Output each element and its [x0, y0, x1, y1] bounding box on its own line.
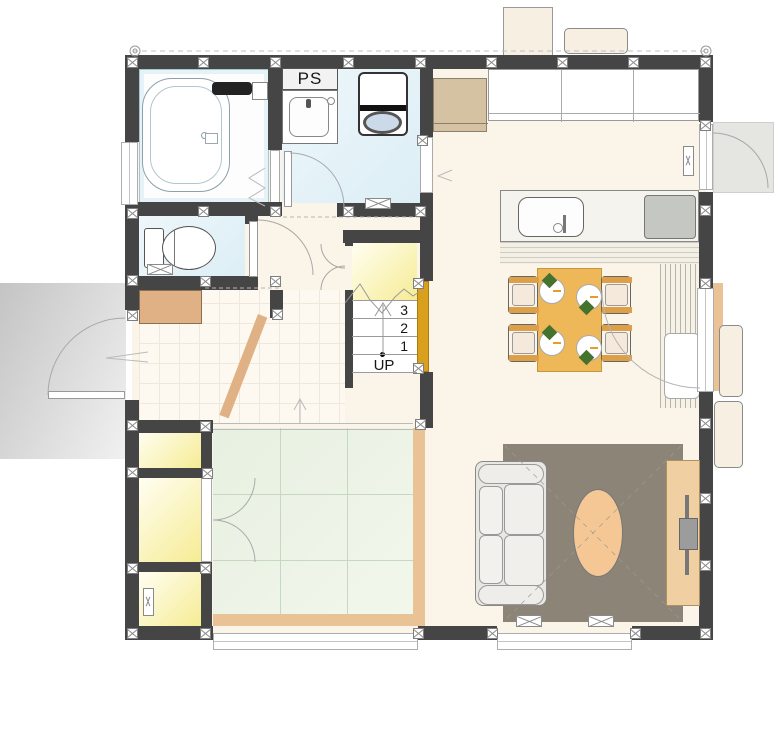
stair-number: 3 — [390, 302, 408, 318]
column-marker — [200, 276, 211, 287]
column-marker — [127, 57, 138, 68]
wall-cabinet — [488, 69, 699, 121]
bathroom-counter-faucet — [212, 82, 252, 95]
column-marker — [700, 57, 711, 68]
chair-arm — [509, 277, 539, 283]
entrance-porch — [0, 283, 126, 459]
column-marker — [630, 628, 641, 639]
washroom-door-leaf — [284, 151, 292, 207]
toilet-seat-line — [174, 230, 175, 266]
dining-chair — [508, 276, 538, 314]
dining-chair — [601, 276, 631, 314]
tatami-grid-line — [280, 428, 281, 616]
cabinet-divider — [561, 70, 562, 122]
column-marker — [413, 278, 424, 289]
cooktop — [644, 195, 696, 239]
washing-machine — [358, 72, 408, 136]
vent-marker-icon — [516, 615, 542, 627]
column-marker — [415, 419, 426, 430]
column-marker — [198, 206, 209, 217]
washbasin-drain — [327, 97, 335, 105]
column-marker — [127, 420, 138, 431]
stair-tread-line — [352, 300, 417, 301]
column-marker — [487, 628, 498, 639]
wall-closet-right-3 — [201, 572, 212, 626]
chair-arm — [509, 325, 539, 331]
column-marker — [415, 57, 426, 68]
toilet-tank — [144, 228, 164, 268]
tatami-border-right — [413, 428, 425, 626]
chair-arm — [509, 307, 539, 313]
sofa-seat-cushion — [504, 484, 544, 535]
kitchen-side-window — [697, 288, 714, 392]
chopsticks — [590, 296, 598, 298]
wall-bathroom-right — [268, 55, 282, 150]
column-marker — [127, 628, 138, 639]
vent-marker-icon — [147, 264, 173, 275]
toilet-door-leaf — [249, 221, 258, 277]
refrigerator — [433, 78, 487, 132]
column-marker — [486, 57, 497, 68]
column-marker — [127, 275, 138, 286]
stair-tread-line — [352, 354, 417, 355]
stair-tread-line — [352, 336, 417, 337]
back-door-porch — [713, 122, 774, 193]
column-marker — [127, 563, 138, 574]
front-door-leaf — [48, 391, 125, 399]
sofa — [475, 461, 547, 606]
column-marker — [202, 468, 213, 479]
counter-front-panel — [500, 242, 699, 264]
washbasin — [282, 90, 338, 144]
bathroom-sliding-door — [270, 150, 280, 203]
closet-2-floor — [139, 478, 201, 562]
living-window — [497, 633, 632, 650]
ac-outdoor-unit-top — [564, 28, 628, 54]
bath-stool — [205, 133, 218, 144]
sofa-back-cushion — [479, 535, 503, 584]
sink-faucet — [563, 215, 566, 233]
column-marker — [700, 120, 711, 131]
wall-left-b — [125, 205, 139, 310]
column-marker — [343, 206, 354, 217]
column-marker — [270, 276, 281, 287]
chair-seat — [512, 284, 535, 306]
chair-seat — [512, 332, 535, 354]
bathroom-shelf — [252, 82, 268, 100]
vent-marker-icon — [588, 615, 614, 627]
floor-plan: 3 2 1 UP PS — [0, 0, 774, 738]
sofa-arm — [478, 464, 544, 484]
cabinet-shelf-line — [489, 113, 700, 114]
tatami-grid-line — [213, 494, 413, 495]
chair-arm — [602, 325, 632, 331]
dining-chair — [601, 324, 631, 362]
vent-marker-icon — [365, 198, 391, 209]
pipe-space-label: PS — [282, 68, 338, 90]
column-marker — [557, 57, 568, 68]
closet-1-floor — [139, 430, 201, 468]
vent-marker-icon — [683, 146, 694, 176]
wall-left-a — [125, 55, 139, 142]
deck-bench — [664, 333, 700, 399]
chair-seat — [605, 332, 628, 354]
sink-drain — [553, 223, 563, 233]
chopsticks — [590, 347, 598, 349]
wall-bottom-b — [418, 626, 497, 640]
wall-toilet-bottom — [125, 276, 258, 290]
wall-stairs-left-a — [345, 230, 353, 246]
tatami-grid-line — [213, 560, 413, 561]
wall-stairs-left-b — [345, 290, 353, 388]
column-marker — [127, 467, 138, 478]
tatami-window — [213, 633, 418, 650]
column-marker — [270, 57, 281, 68]
tv-board — [666, 460, 700, 606]
chopsticks — [553, 342, 561, 344]
column-marker — [413, 628, 424, 639]
cabinet-divider — [633, 70, 634, 122]
column-marker — [415, 206, 426, 217]
wall-right-c — [699, 392, 713, 640]
dining-chair — [508, 324, 538, 362]
chair-arm — [602, 355, 632, 361]
sofa-arm — [478, 585, 544, 605]
stairs-gold-wall — [417, 281, 429, 372]
sofa-back-cushion — [479, 486, 503, 535]
tatami-opening-top — [213, 423, 413, 430]
stair-number: 2 — [390, 320, 408, 336]
column-marker — [700, 205, 711, 216]
kitchen-sink — [518, 197, 584, 237]
wall-stairs-top — [343, 230, 423, 243]
column-marker — [628, 57, 639, 68]
chair-arm — [509, 355, 539, 361]
chopsticks — [553, 290, 561, 292]
column-marker — [700, 278, 711, 289]
column-marker — [127, 208, 138, 219]
column-marker — [198, 57, 209, 68]
kitchen-counter — [500, 190, 699, 242]
bathroom-window — [121, 142, 138, 205]
column-marker — [270, 206, 281, 217]
column-marker — [700, 560, 711, 571]
column-marker — [700, 628, 711, 639]
tatami-border-bottom — [213, 614, 425, 626]
column-marker — [700, 418, 711, 429]
stair-tread-line — [352, 318, 417, 319]
column-marker — [272, 309, 283, 320]
coffee-table — [573, 489, 623, 577]
wall-left-c — [125, 400, 139, 640]
refrigerator-door-line — [434, 123, 488, 124]
column-marker — [343, 57, 354, 68]
understair-closet-floor — [352, 243, 417, 300]
shoe-cabinet — [139, 290, 202, 324]
closet-2-sliding-door — [201, 478, 212, 562]
tatami-grid-line — [347, 428, 348, 616]
washbasin-faucet — [306, 99, 311, 108]
stair-number: 1 — [390, 338, 408, 354]
column-marker — [200, 563, 211, 574]
back-door-leaf — [699, 124, 713, 190]
chair-arm — [602, 277, 632, 283]
column-marker — [700, 493, 711, 504]
chair-seat — [605, 284, 628, 306]
column-marker — [417, 135, 428, 146]
vent-marker-icon — [143, 588, 154, 616]
washing-machine-drum — [363, 111, 402, 134]
stair-tread-line — [352, 372, 417, 373]
column-marker — [200, 421, 211, 432]
tatami-floor — [213, 428, 413, 616]
ac-outdoor-unit-right-2 — [714, 401, 743, 468]
column-marker — [200, 628, 211, 639]
column-marker — [127, 310, 138, 321]
tv-body — [679, 518, 698, 550]
sofa-seat-cushion — [504, 535, 544, 586]
ac-outdoor-unit-right-1 — [719, 325, 743, 397]
chair-arm — [602, 307, 632, 313]
